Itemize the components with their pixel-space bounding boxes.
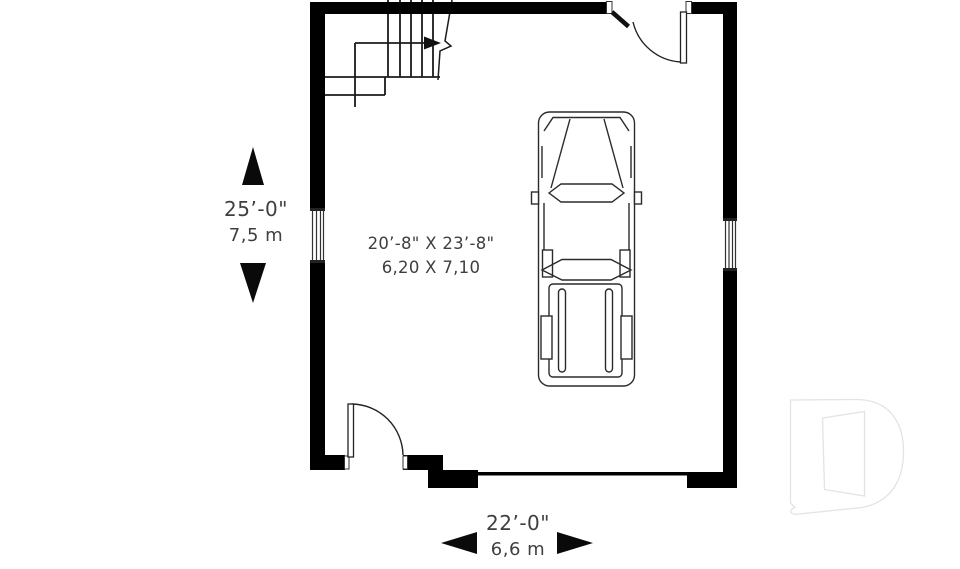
staircase — [323, 0, 452, 107]
truck-rear-wheel-left — [541, 316, 552, 359]
window-left — [310, 208, 326, 263]
truck-rear-wheel-right — [621, 316, 632, 359]
floor-plan-drawing — [0, 0, 960, 569]
door-stop — [612, 12, 629, 27]
down-arrow-icon — [240, 263, 266, 303]
door-swing-arc — [633, 22, 681, 62]
wall-bottom-step — [428, 470, 478, 488]
truck-body — [539, 112, 635, 386]
wall-bottom-left-a — [310, 455, 345, 470]
wall-bottom-left-b — [403, 455, 443, 470]
garage-door — [478, 472, 690, 476]
right-arrow-icon — [557, 532, 593, 554]
door-jamb — [607, 2, 613, 14]
window-right — [723, 218, 738, 271]
truck-mirror-left — [532, 192, 539, 204]
door-jamb — [345, 456, 350, 469]
garage-floor-plan: 25’-0" 7,5 m 20’-8" X 23’-8" 6,20 X 7,10… — [0, 0, 960, 569]
room-size-imperial: 20’-8" X 23’-8" — [351, 234, 511, 253]
door-leaf — [348, 404, 354, 457]
wall-bottom-right — [687, 472, 737, 488]
door-swing-arc — [352, 404, 404, 455]
logo-door-cutout — [823, 412, 865, 497]
truck-bed-rail-left — [559, 289, 566, 372]
depth-dimension-imperial: 25’-0" — [204, 197, 308, 221]
truck-mirror-right — [635, 192, 642, 204]
pickup-truck — [532, 112, 642, 386]
logo-outer-d — [791, 400, 904, 515]
room-size-metric: 6,20 X 7,10 — [351, 258, 511, 277]
door-leaf — [681, 12, 687, 63]
wall-top-left-segment — [310, 2, 607, 14]
brand-logo-watermark — [791, 400, 904, 515]
truck-bed-rail-right — [606, 289, 613, 372]
up-arrow-icon — [242, 147, 264, 185]
depth-dimension-metric: 7,5 m — [204, 225, 308, 246]
service-door-bottom — [345, 404, 408, 469]
door-jamb — [403, 456, 408, 469]
entry-door-top — [607, 2, 692, 64]
